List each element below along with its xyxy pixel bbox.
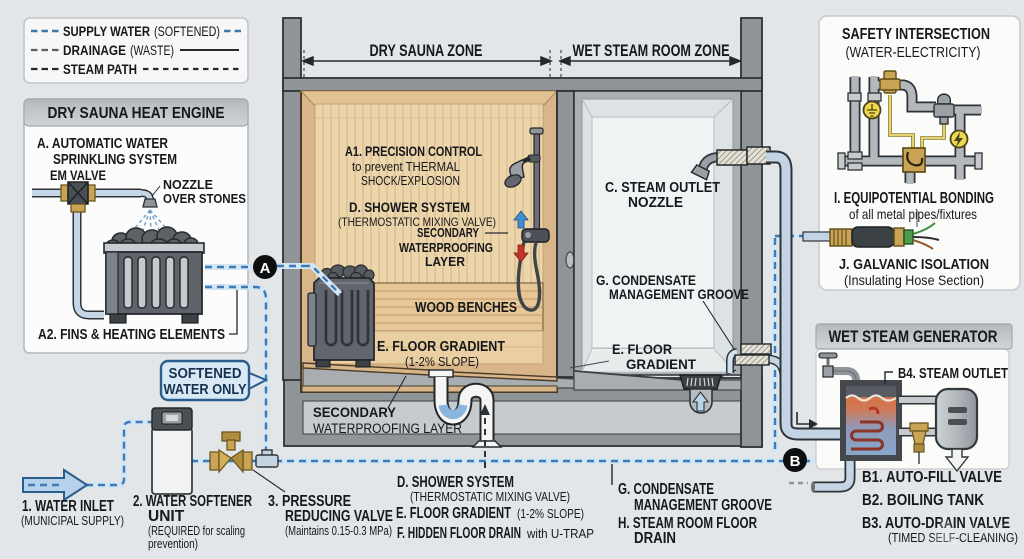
svg-text:WET STEAM ROOM ZONE: WET STEAM ROOM ZONE [573, 41, 730, 60]
svg-text:J. GALVANIC ISOLATION: J. GALVANIC ISOLATION [839, 256, 989, 273]
svg-text:E. FLOOR GRADIENT: E. FLOOR GRADIENT [377, 339, 505, 355]
svg-text:(REQUIRED for scaling: (REQUIRED for scaling [148, 524, 245, 538]
svg-text:DRAINAGE: DRAINAGE [63, 43, 126, 58]
svg-text:B1. AUTO-FILL VALVE: B1. AUTO-FILL VALVE [862, 469, 1002, 486]
svg-text:SECONDARY: SECONDARY [417, 225, 479, 240]
svg-text:(MUNICIPAL SUPPLY): (MUNICIPAL SUPPLY) [21, 513, 124, 528]
svg-text:REDUCING VALVE: REDUCING VALVE [285, 508, 393, 525]
svg-text:DRY SAUNA ZONE: DRY SAUNA ZONE [370, 41, 483, 60]
svg-text:VALVE: VALVE [958, 522, 1006, 539]
svg-text:SECONDARY: SECONDARY [313, 405, 396, 420]
svg-text:B4. STEAM OUTLET: B4. STEAM OUTLET [898, 365, 1008, 382]
svg-text:of all metal pipes/fixtures: of all metal pipes/fixtures [849, 206, 977, 222]
svg-text:(Insulating Hose Section): (Insulating Hose Section) [844, 272, 984, 288]
svg-text:GRADIENT: GRADIENT [626, 356, 696, 372]
svg-text:to prevent THERMAL: to prevent THERMAL [352, 160, 460, 174]
svg-text:B2. BOILING TANK: B2. BOILING TANK [862, 492, 984, 509]
svg-text:(SOFTENED): (SOFTENED) [154, 24, 220, 39]
svg-text:SAFETY INTERSECTION: SAFETY INTERSECTION [842, 26, 990, 43]
svg-text:(WASTE): (WASTE) [130, 43, 174, 58]
svg-text:NOZZLE: NOZZLE [628, 195, 683, 211]
svg-text:NOZZLE: NOZZLE [163, 177, 213, 192]
svg-text:F. HIDDEN FLOOR DRAIN: F. HIDDEN FLOOR DRAIN [397, 525, 521, 542]
svg-text:OVER STONES: OVER STONES [163, 191, 246, 206]
svg-text:A. AUTOMATIC WATER: A. AUTOMATIC WATER [37, 136, 168, 152]
svg-text:EM VALVE: EM VALVE [50, 168, 106, 183]
svg-text:WET STEAM GENERATOR: WET STEAM GENERATOR [829, 328, 998, 346]
svg-text:SUPPLY WATER: SUPPLY WATER [63, 24, 150, 39]
svg-text:C. STEAM OUTLET: C. STEAM OUTLET [605, 180, 720, 196]
svg-text:D. SHOWER SYSTEM: D. SHOWER SYSTEM [349, 199, 470, 215]
svg-text:SHOCK/EXPLOSION: SHOCK/EXPLOSION [361, 174, 460, 188]
svg-text:E. FLOOR: E. FLOOR [612, 341, 672, 357]
svg-text:MANAGEMENT GROOVE: MANAGEMENT GROOVE [634, 497, 772, 514]
svg-text:G. CONDENSATE: G. CONDENSATE [618, 481, 714, 498]
svg-text:WATERPROOFING LAYER: WATERPROOFING LAYER [313, 421, 462, 436]
svg-text:(THERMOSTATIC MIXING VALVE): (THERMOSTATIC MIXING VALVE) [410, 489, 570, 504]
svg-text:I. EQUIPOTENTIAL BONDING: I. EQUIPOTENTIAL BONDING [834, 190, 994, 207]
svg-text:WOOD BENCHES: WOOD BENCHES [415, 300, 517, 316]
svg-text:DRY SAUNA HEAT ENGINE: DRY SAUNA HEAT ENGINE [48, 105, 225, 122]
svg-text:A: A [260, 260, 271, 277]
svg-text:MANAGEMENT GROOVE: MANAGEMENT GROOVE [609, 286, 749, 302]
svg-text:(Maintains 0.15-0.3 MPa): (Maintains 0.15-0.3 MPa) [285, 524, 392, 538]
svg-text:WATERPROOFING: WATERPROOFING [399, 240, 493, 255]
svg-text:SOFTENED: SOFTENED [169, 366, 242, 382]
svg-text:E. FLOOR GRADIENT: E. FLOOR GRADIENT [396, 505, 511, 522]
svg-text:DRAIN: DRAIN [634, 530, 676, 547]
svg-text:(1-2% SLOPE): (1-2% SLOPE) [405, 355, 479, 369]
svg-text:(WATER-ELECTRICITY): (WATER-ELECTRICITY) [846, 45, 981, 61]
svg-text:WATER ONLY: WATER ONLY [164, 382, 247, 398]
svg-text:prevention): prevention) [148, 537, 198, 551]
svg-text:B: B [790, 453, 801, 470]
svg-text:(1-2% SLOPE): (1-2% SLOPE) [517, 506, 584, 521]
svg-text:LAYER: LAYER [425, 254, 466, 269]
svg-text:UNIT: UNIT [148, 508, 185, 525]
svg-text:STEAM PATH: STEAM PATH [63, 62, 137, 77]
svg-text:A2. FINS & HEATING ELEMENTS: A2. FINS & HEATING ELEMENTS [38, 326, 225, 343]
svg-text:A1. PRECISION CONTROL: A1. PRECISION CONTROL [345, 143, 482, 159]
svg-text:SPRINKLING SYSTEM: SPRINKLING SYSTEM [53, 152, 177, 168]
svg-text:with U-TRAP: with U-TRAP [526, 526, 594, 541]
